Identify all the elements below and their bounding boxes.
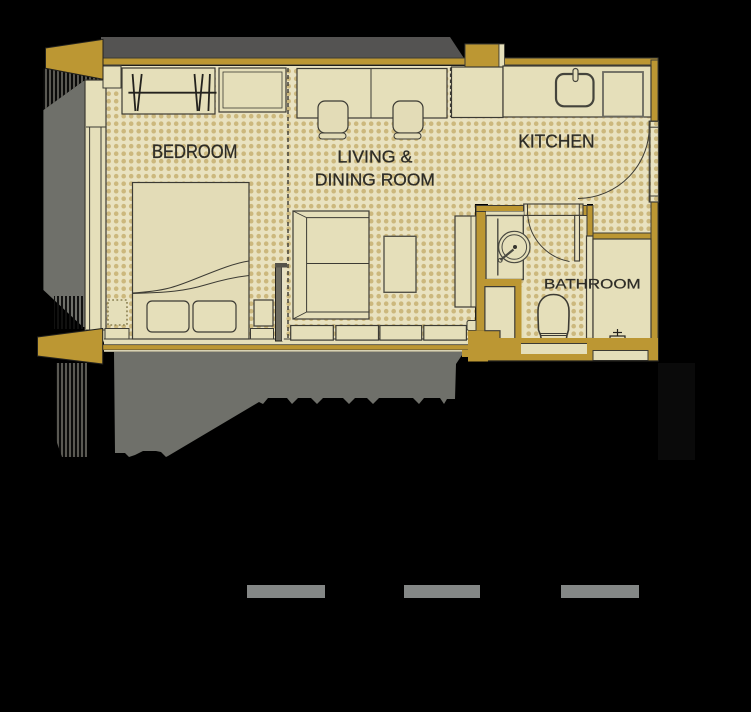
svg-text:KITCHEN: KITCHEN	[518, 130, 594, 151]
svg-text:BEDROOM: BEDROOM	[152, 142, 238, 163]
svg-text:BATHROOM: BATHROOM	[544, 276, 641, 292]
svg-text:LIVING &: LIVING &	[337, 146, 412, 166]
svg-text:DINING ROOM: DINING ROOM	[315, 169, 435, 189]
